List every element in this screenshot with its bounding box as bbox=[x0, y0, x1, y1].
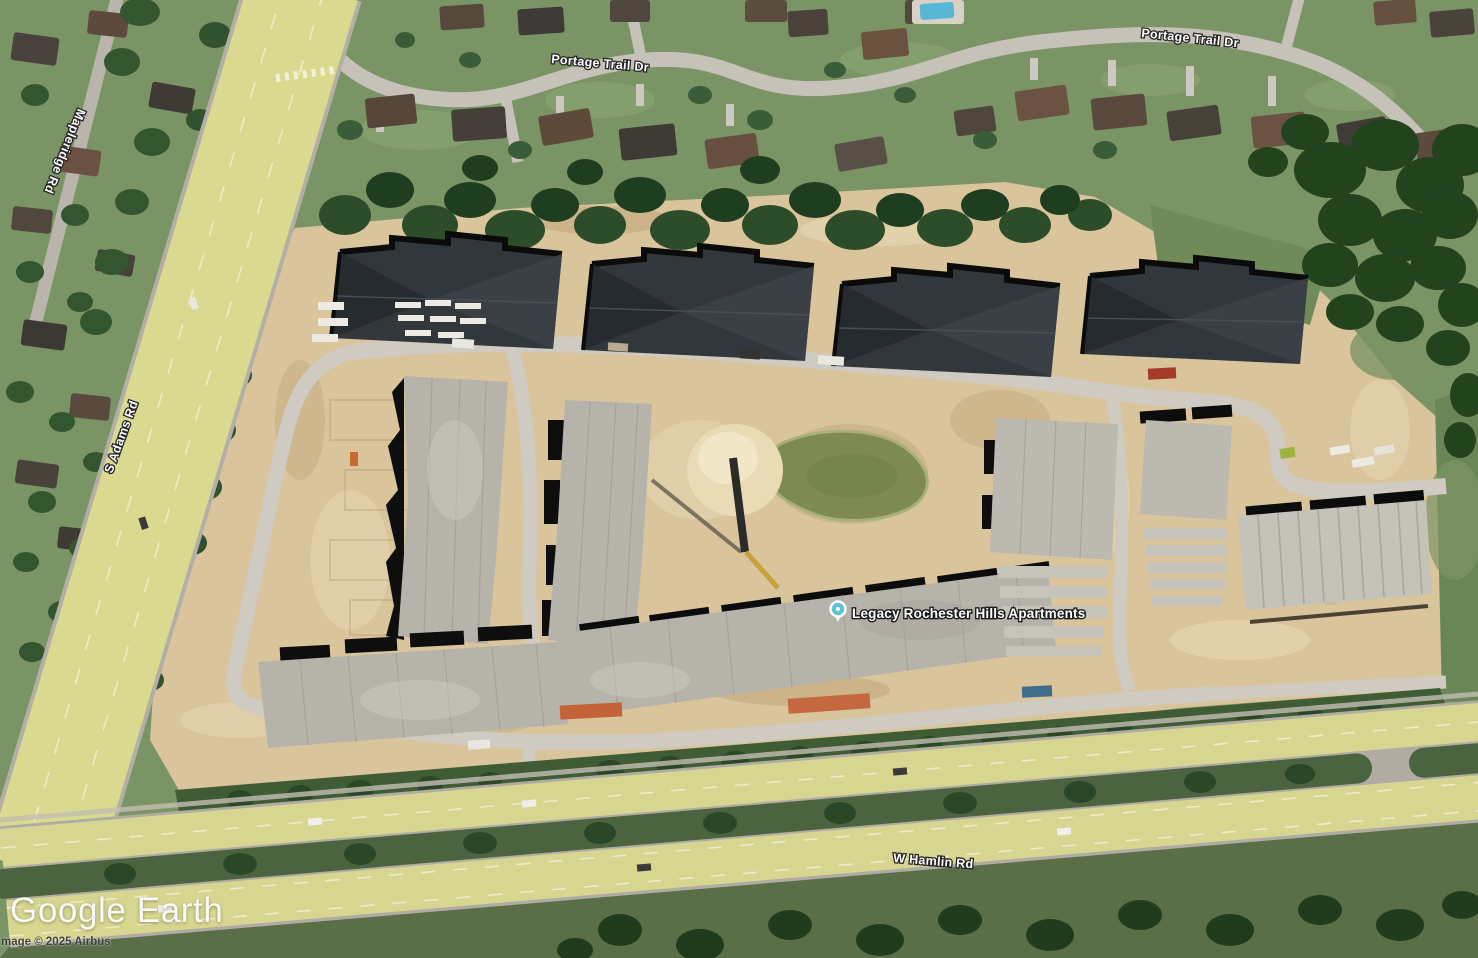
building-1 bbox=[331, 234, 562, 349]
building-3 bbox=[833, 266, 1060, 377]
google-earth-logo: Google Earth bbox=[10, 891, 223, 931]
swimming-pool bbox=[919, 2, 954, 20]
google-earth-viewport[interactable]: Portage Trail Dr Portage Trail Dr Mapler… bbox=[0, 0, 1478, 958]
attribution-text: mage © 2025 Airbus bbox=[1, 936, 111, 948]
place-label: Legacy Rochester Hills Apartments bbox=[852, 606, 1085, 621]
place-pin-dot bbox=[836, 607, 840, 611]
building-4 bbox=[1082, 258, 1308, 364]
